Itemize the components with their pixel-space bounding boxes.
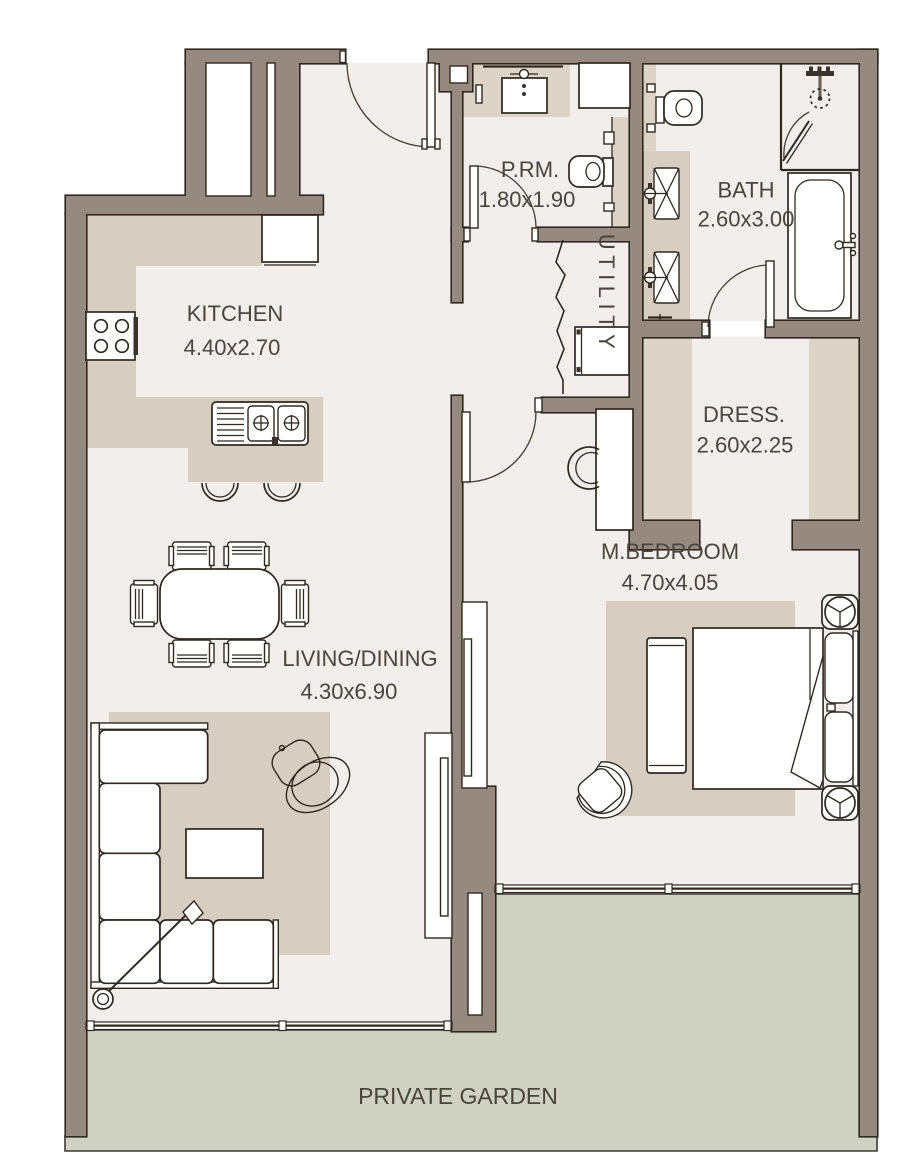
svg-text:BATH: BATH xyxy=(717,178,774,203)
svg-text:P.RM.: P.RM. xyxy=(501,157,559,182)
svg-text:M.BEDROOM: M.BEDROOM xyxy=(601,539,739,564)
svg-text:KITCHEN: KITCHEN xyxy=(187,301,284,326)
svg-text:4.30x6.90: 4.30x6.90 xyxy=(301,679,398,704)
svg-text:1.80x1.90: 1.80x1.90 xyxy=(479,187,576,212)
svg-text:2.60x3.00: 2.60x3.00 xyxy=(698,207,795,232)
svg-text:UTILITY: UTILITY xyxy=(594,234,619,354)
svg-text:4.70x4.05: 4.70x4.05 xyxy=(622,570,719,595)
svg-text:DRESS.: DRESS. xyxy=(703,402,785,427)
svg-text:4.40x2.70: 4.40x2.70 xyxy=(184,335,281,360)
svg-text:PRIVATE GARDEN: PRIVATE GARDEN xyxy=(358,1083,558,1109)
svg-text:LIVING/DINING: LIVING/DINING xyxy=(282,646,437,671)
svg-text:2.60x2.25: 2.60x2.25 xyxy=(697,433,794,458)
